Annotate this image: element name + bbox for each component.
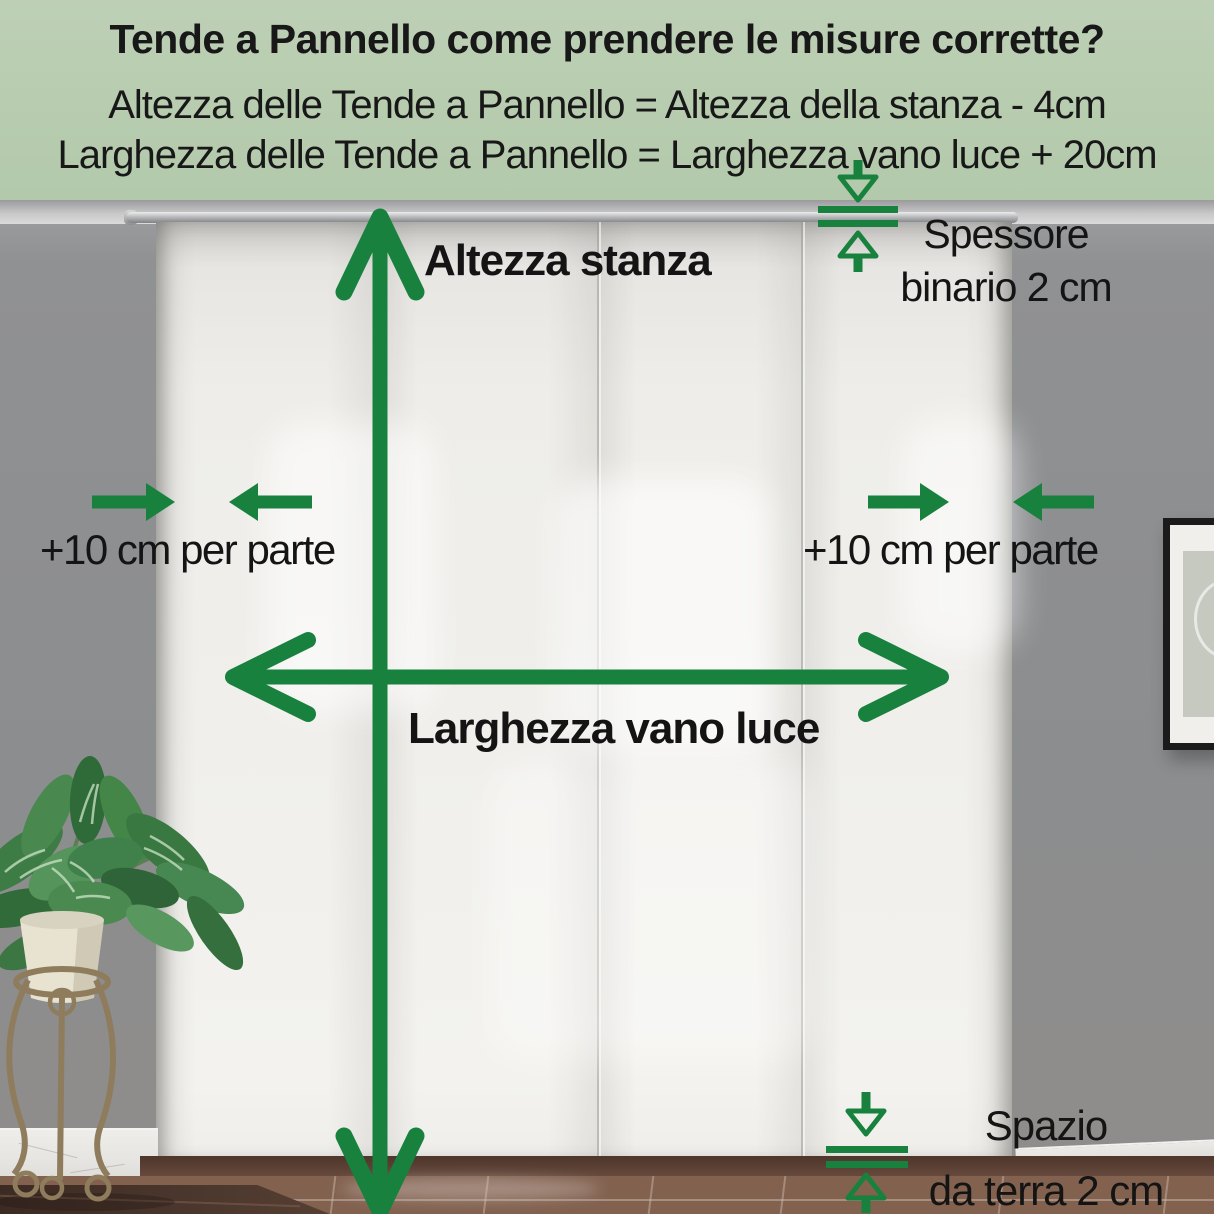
room-photo — [0, 200, 1214, 1214]
height-formula: Altezza delle Tende a Pannello = Altezza… — [0, 83, 1214, 128]
tile-grout — [230, 1199, 1214, 1201]
header-band: Tende a Pannello come prendere le misure… — [0, 0, 1214, 200]
infographic: Tende a Pannello come prendere le misure… — [0, 0, 1214, 1214]
width-formula: Larghezza delle Tende a Pannello = Largh… — [0, 133, 1214, 178]
light-reflection — [266, 422, 436, 712]
picture-mat — [1170, 525, 1214, 743]
light-reflection — [901, 417, 1016, 652]
floor-reflection — [340, 1178, 600, 1200]
plant-on-stand — [0, 740, 280, 1214]
page-title: Tende a Pannello come prendere le misure… — [0, 16, 1214, 63]
floor-threshold — [140, 1156, 1214, 1178]
light-reflection — [486, 762, 816, 1062]
light-reflection — [556, 477, 771, 757]
plant-stand — [9, 969, 113, 1199]
picture-frame — [1163, 518, 1214, 750]
panel-curtains — [156, 222, 1012, 1158]
curtain-panel — [801, 222, 1012, 1158]
picture-art — [1183, 551, 1214, 717]
circle-drawing — [1194, 579, 1214, 659]
